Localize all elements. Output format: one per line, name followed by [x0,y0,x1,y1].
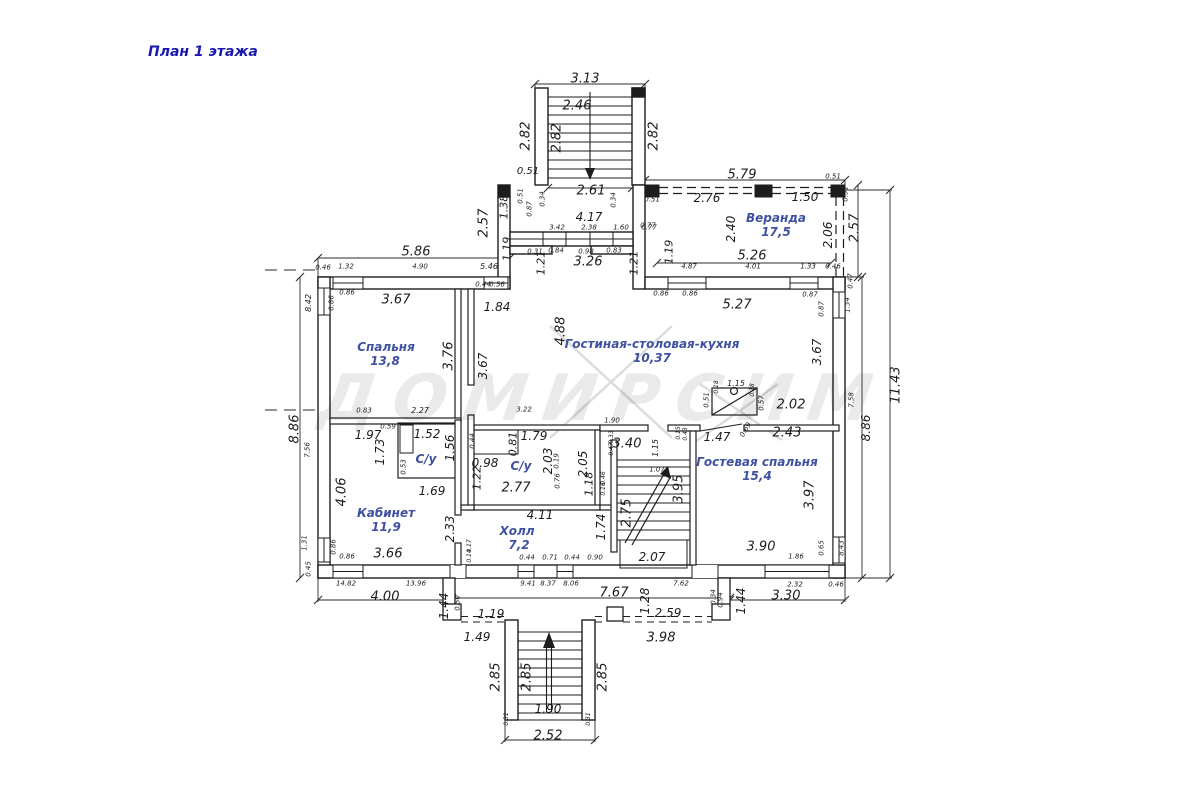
dimension-label: 1.73 [374,439,386,466]
dimension-label: 0.50 [455,595,462,611]
dimension-label: 1.33 [800,264,816,271]
dimension-label: 5.26 [738,250,767,263]
dimension-label: 2.52 [534,730,563,743]
dimension-label: 1.69 [419,485,446,497]
dimension-label: 1.84 [484,301,511,313]
dimension-label: 3.98 [647,632,676,645]
dimension-label: 2.27 [411,407,429,415]
dimension-label: 0.59 [380,424,396,431]
dimension-label: 0.86 [329,295,336,311]
dimension-label: 4.11 [527,509,554,521]
stair-up-arrow [543,632,555,648]
dimension-label: 1.21 [629,251,640,276]
dimension-label: 2.02 [777,399,806,412]
dimension-label: 8.86 [860,415,872,442]
dimension-label: 0.90 [587,555,603,562]
axis-dashed-lines [265,270,318,410]
window [318,538,330,562]
dimension-label: 0.46 [315,265,331,272]
dimension-label: 8.06 [563,581,579,588]
dimension-label: 2.46 [563,100,592,113]
dimension-label: 5.86 [402,246,431,259]
dimension-label: 1.22 [472,466,483,491]
dimension-label: 1.18 [584,472,595,497]
dimension-label: 4.06 [336,478,349,507]
dimension-label: 4.17 [576,211,603,223]
dimension-label: 0.14 [467,549,473,562]
dimension-label: 3.95 [673,475,686,504]
room-label: Кабинет [357,507,415,519]
room-area-label: 10,37 [633,352,671,364]
dimension-label: 1.34 [845,297,852,313]
dimension-label: 5.27 [723,299,752,312]
dimension-label: 2.43 [773,427,802,440]
dimension-label: 1.19 [664,240,675,265]
dimension-label: 2.57 [849,214,862,243]
dimension-label: 0.44 [519,555,535,562]
dimension-label: 3.42 [549,225,565,232]
dimension-label: 0.87 [527,201,534,217]
floor-plan-page: 3.132.462.822.822.820.512.610.511.380.87… [0,0,1200,800]
dimension-label: 4.90 [412,264,428,271]
door-opening [450,565,466,578]
room-area-label: 7,2 [508,539,529,551]
dimension-label: 1.19 [478,608,505,620]
dimension-label: 0.45 [306,561,313,577]
dimension-label: 0.56 [489,282,505,289]
dimension-label: 3.30 [772,590,801,603]
dimension-label: 3.40 [613,438,642,451]
dimension-label: 0.18 [714,380,720,393]
dimension-label: 1.86 [788,554,804,561]
dimension-label: 0.53 [401,459,408,475]
window [557,565,573,578]
dimension-label: 3.97 [804,481,817,510]
window [518,565,534,578]
dimension-label: 4.01 [745,264,761,271]
dimension-label: 2.77 [502,482,531,495]
window [668,277,706,289]
dimension-label: 1.79 [521,430,548,442]
dimension-label: 1.38 [499,195,510,220]
dimension-label: 0.71 [542,555,558,562]
dimension-label: 1.21 [536,251,547,276]
dimension-label: 2.07 [639,551,666,563]
dimension-label: 0.31 [504,712,510,725]
room-label: Веранда [746,212,806,224]
dimension-label: 14.82 [336,581,356,588]
dimension-label: 0.47 [848,273,855,289]
dimension-label: 2.59 [655,607,682,619]
dimension-label: 3.76 [443,342,456,371]
dimension-label: 0.81 [508,432,519,457]
dimension-label: 0.34 [540,191,547,207]
dimension-label: 1.90 [535,703,562,715]
dimension-label: 3.67 [477,353,489,380]
dimension-label: 4.87 [681,264,697,271]
room-label: С/у [415,453,436,465]
dimension-label: 7.56 [305,442,312,458]
window [333,277,363,289]
dimension-label: 8.43 [839,540,846,556]
dimension-label: 2.82 [648,122,661,151]
dimension-label: 1.28 [639,588,651,615]
dimension-label: 2.82 [551,124,564,153]
dimension-label: 0.86 [653,291,669,298]
dimension-label: 0.47 [609,442,615,455]
dimension-label: 1.44 [735,588,747,615]
dimension-label: 0.65 [819,540,826,556]
dimension-label: 9.41 [520,581,536,588]
dimension-label: 7.67 [600,587,629,600]
room-label: Спальня [357,341,415,353]
dimension-label: 3.67 [811,339,823,366]
room-label: Гостевая спальня [696,456,818,468]
dimension-label: 11.43 [890,366,903,403]
window [790,277,818,289]
dimension-label: 2.32 [787,582,803,589]
dimension-label: 1.07 [649,467,665,474]
dimension-label: 0.57 [759,395,766,411]
dimension-label: 1.47 [704,431,731,443]
dimension-label: 0.34 [611,192,618,208]
dimension-label: 8.42 [305,294,313,312]
dimension-label: 1.15 [727,380,745,388]
room-area-label: 13,8 [370,355,400,367]
dimension-label: 3.22 [516,407,532,414]
dimension-label: 0.44 [470,433,477,449]
room-area-label: 15,4 [742,470,772,482]
dimension-label: 1.52 [414,428,441,440]
dimension-label: 0.43 [683,427,689,440]
dimension-label: 1.60 [613,225,629,232]
dimension-label: 0.86 [682,291,698,298]
room-label: С/у [510,460,531,472]
dimension-label: 1.56 [444,435,456,462]
floor-plan-canvas: 3.132.462.822.822.820.512.610.511.380.87… [0,0,1200,800]
dimension-label: 2.85 [490,663,503,692]
dimension-label: 2.06 [822,222,834,249]
dimension-label: 0.31 [586,712,592,725]
dimension-label: 3.67 [382,294,411,307]
dimension-label: 0.51 [704,392,711,408]
dimension-label: 1.31 [302,535,309,551]
dimension-label: 0.76 [555,473,562,489]
dimension-label: 0.86 [339,554,355,561]
dimension-label: 0.51 [518,188,525,204]
dimension-label: 0.51 [644,197,660,204]
dimension-label: 5.46 [480,263,498,271]
dimension-label: 0.86 [339,290,355,297]
dimension-label: 1.44 [438,593,450,620]
dimension-label: 2.76 [694,192,721,204]
dimension-label: 0.46 [825,264,841,271]
dimension-label: 4.00 [371,591,400,604]
dimension-label: 2.61 [577,185,606,198]
dimension-label: 5.79 [728,169,757,182]
dimension-label: 0.18 [750,383,756,396]
dimension-label: 8.37 [540,581,556,588]
interior-walls [330,289,839,565]
dimension-label: 1.49 [464,631,491,643]
dimension-label: 1.50 [792,191,819,203]
dimension-label: 3.13 [571,73,600,86]
dimension-label: 0.94 [718,592,725,608]
dimension-label: 0.83 [606,248,622,255]
dimension-label: 1.32 [338,264,354,271]
dimension-label: 3.66 [374,548,403,561]
room-label: Гостиная-столовая-кухня [565,338,740,350]
dimension-label: 0.83 [356,408,372,415]
dimension-label: 1.15 [652,439,660,457]
dimension-label: 0.44 [564,555,580,562]
dimension-label: 2.85 [521,663,534,692]
dimension-label: 0.51 [843,186,850,202]
dimension-label: 0.86 [331,539,338,555]
dimension-label: 3.26 [574,256,603,269]
dimension-label: 2.57 [478,209,491,238]
dimension-label: 2.85 [597,663,610,692]
dimension-label: 0.87 [802,292,818,299]
plan-title: План 1 этажа [148,44,258,60]
dimension-label: 0.51 [825,174,841,181]
dimension-label: 0.77 [640,223,656,230]
room-area-label: 11,9 [371,521,401,533]
dimension-label: 2.40 [725,216,737,243]
room-area-label: 17,5 [761,226,791,238]
room-label: Холл [499,525,534,537]
dimension-label: 0.87 [819,301,826,317]
dimension-label: 2.33 [444,516,456,543]
dimension-label: 0.16 [601,482,607,495]
dimension-label: 13.96 [406,581,426,588]
dimension-label: 0.19 [554,453,561,469]
dimension-label: 3.90 [747,541,776,554]
dimension-label: 1.90 [604,418,620,425]
dimension-label: 0.46 [828,582,844,589]
dimension-label: 1.74 [595,514,607,541]
dimension-label: 0.84 [548,248,564,255]
window [765,565,829,578]
dimension-label: 1.19 [502,237,513,262]
dimension-label: 7.62 [673,581,689,588]
door-opening [692,565,718,578]
dimension-label: 0.51 [517,167,539,177]
dimension-label: 2.82 [520,122,533,151]
window [333,565,363,578]
dimension-label: 8.86 [289,415,302,444]
dimension-label: 2.75 [621,499,634,528]
dimension-label: 7.58 [849,392,856,408]
dimension-label: 2.38 [581,225,597,232]
